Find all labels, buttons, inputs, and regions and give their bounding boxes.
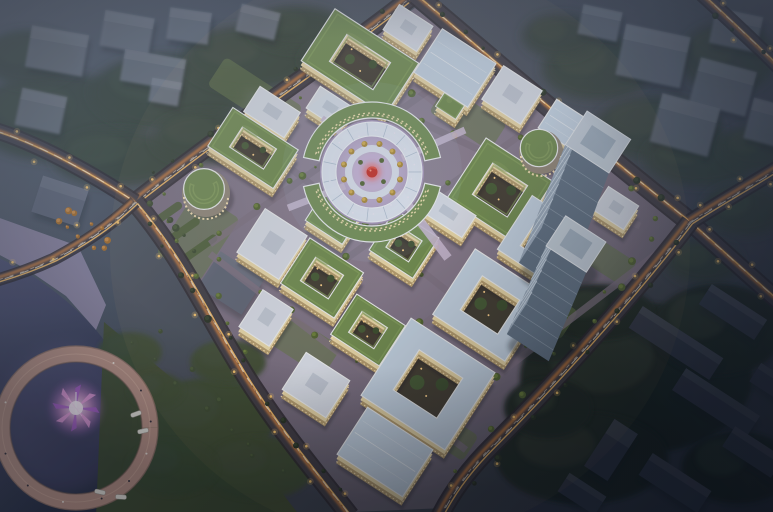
streetlight-dot	[751, 263, 754, 266]
streetlight-dot	[11, 261, 14, 264]
scene-layers	[0, 0, 773, 512]
streetlight-dot	[699, 204, 702, 207]
streetlight-dot	[769, 47, 772, 50]
streetlight-dot	[76, 224, 79, 227]
streetlight-dot	[759, 295, 762, 298]
streetlight-dot	[68, 156, 71, 159]
streetlight-dot	[732, 39, 735, 42]
streetlight-dot	[16, 130, 19, 133]
streetlight-dot	[33, 161, 36, 164]
streetlight-dot	[86, 186, 89, 189]
streetlight-dot	[708, 228, 711, 231]
light-fountain	[46, 378, 106, 438]
streetlight-dot	[717, 260, 720, 263]
rendering-canvas	[0, 0, 773, 512]
streetlight-dot	[727, 205, 730, 208]
streetlight-dot	[739, 178, 742, 181]
streetlight-dot	[52, 258, 55, 261]
aerial-dusk-rendering	[0, 0, 773, 512]
streetlight-dot	[769, 183, 772, 186]
boat	[115, 494, 126, 499]
plaza-ambient-glow	[282, 82, 462, 262]
streetlight-dot	[722, 2, 725, 5]
